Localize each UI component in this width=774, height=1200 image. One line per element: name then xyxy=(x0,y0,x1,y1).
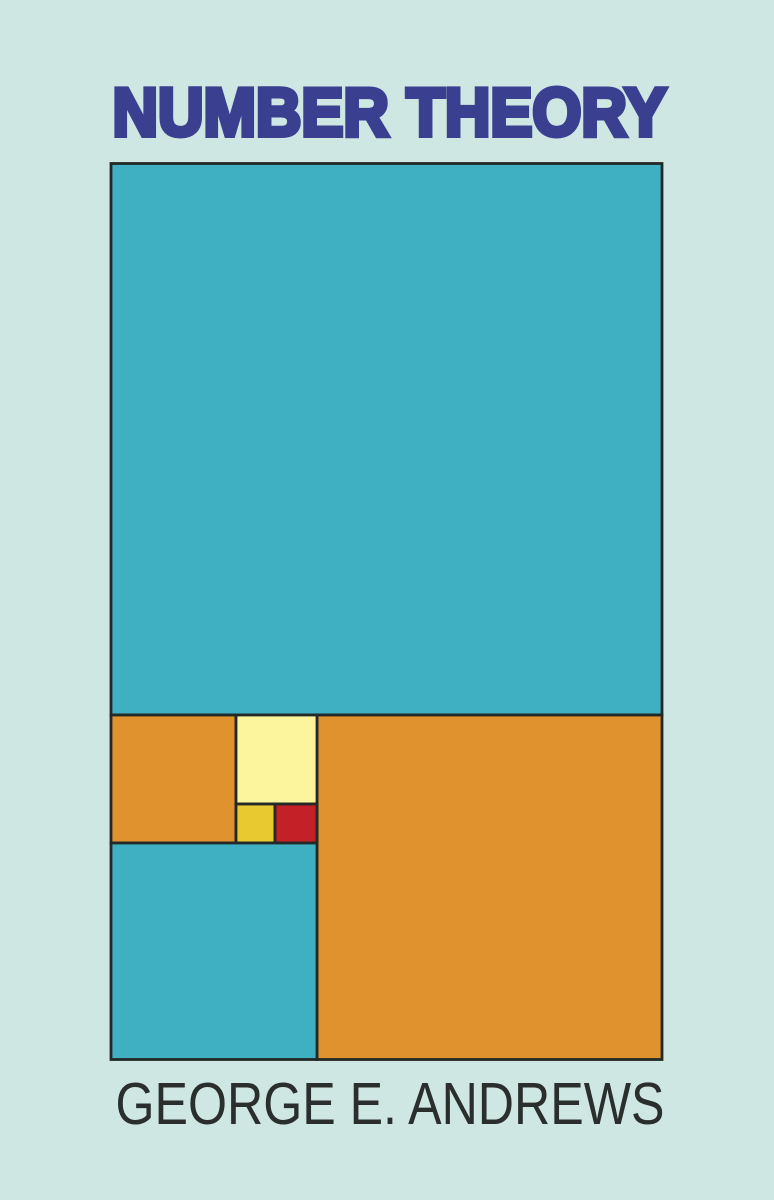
svg-text:NUMBER THEORY: NUMBER THEORY xyxy=(113,75,667,151)
svg-text:GEORGE E. ANDREWS: GEORGE E. ANDREWS xyxy=(116,1071,665,1137)
